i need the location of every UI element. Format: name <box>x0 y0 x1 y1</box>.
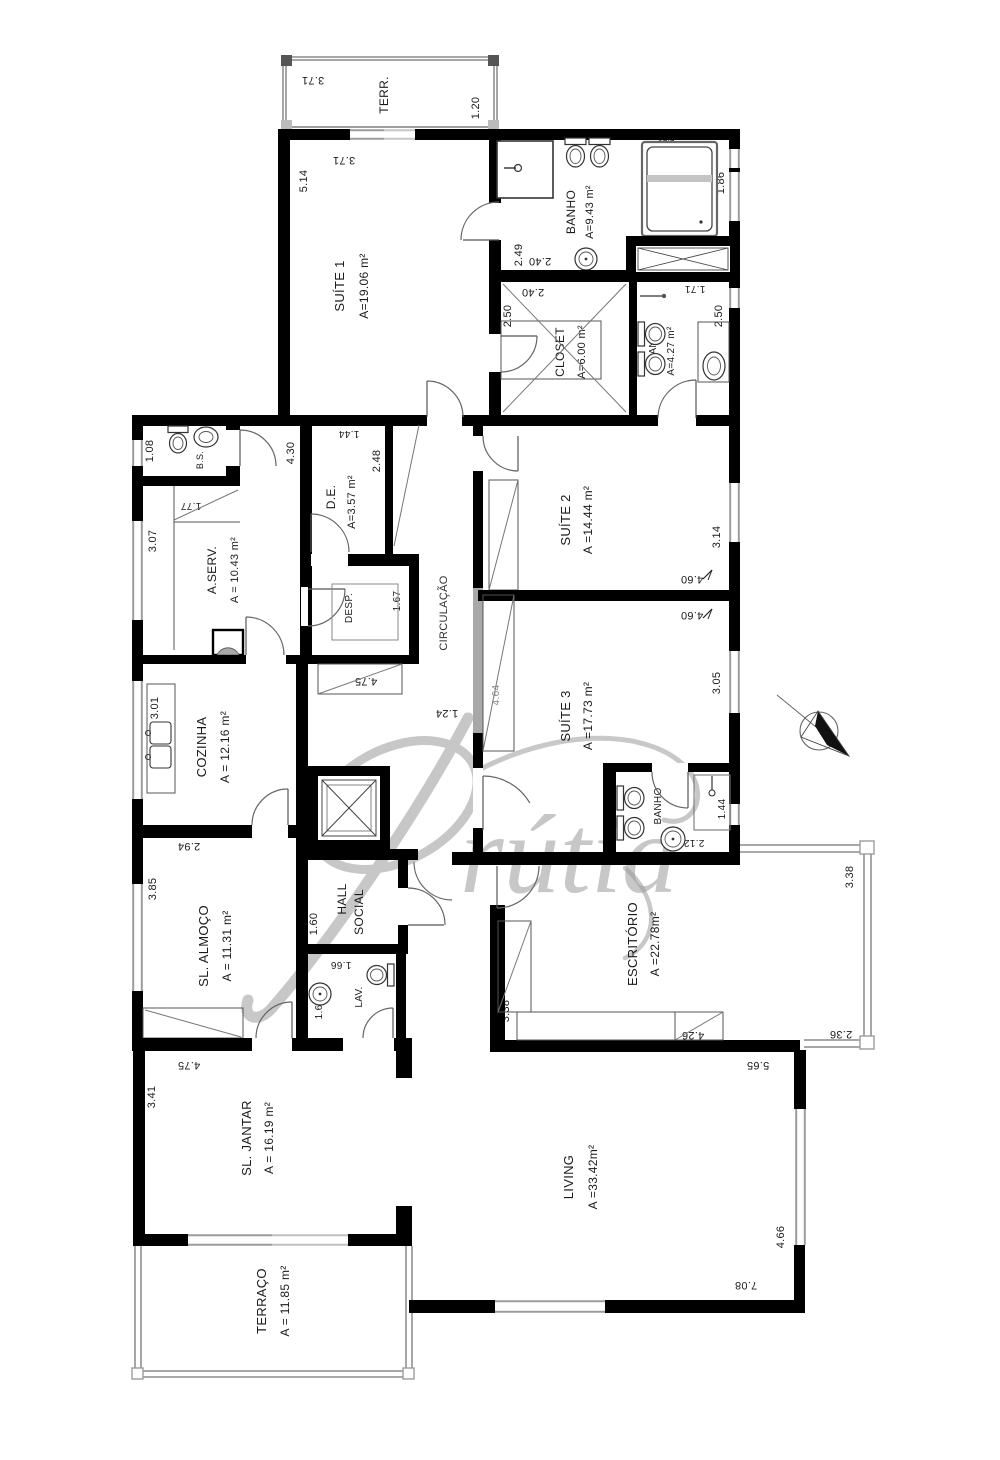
svg-text:1.44: 1.44 <box>339 428 360 439</box>
svg-text:A = 11.85 m²: A = 11.85 m² <box>278 1265 292 1336</box>
svg-text:SUÍTE 3: SUÍTE 3 <box>558 690 573 741</box>
svg-text:A=9.43 m²: A=9.43 m² <box>584 185 596 239</box>
svg-text:4.64: 4.64 <box>491 685 502 706</box>
svg-text:1.20: 1.20 <box>470 97 482 120</box>
svg-text:1.60: 1.60 <box>308 913 320 936</box>
svg-text:B.S.: B.S. <box>195 451 205 469</box>
svg-text:2.36: 2.36 <box>830 1028 853 1040</box>
svg-text:2.40: 2.40 <box>522 286 545 298</box>
svg-text:4.66: 4.66 <box>775 1226 787 1249</box>
svg-text:A.SERV.: A.SERV. <box>205 546 219 594</box>
svg-text:BANHO: BANHO <box>564 190 578 234</box>
svg-text:A = 11.31 m²: A = 11.31 m² <box>220 910 234 981</box>
svg-text:3.41: 3.41 <box>146 1086 158 1109</box>
svg-text:CLOSET: CLOSET <box>553 327 567 377</box>
svg-text:4.26: 4.26 <box>682 1029 705 1041</box>
svg-text:2.50: 2.50 <box>713 305 725 328</box>
svg-text:HALL: HALL <box>335 883 349 914</box>
svg-text:3.71: 3.71 <box>302 74 325 86</box>
svg-text:A =17.73 m²: A =17.73 m² <box>581 682 595 750</box>
svg-text:1.77: 1.77 <box>181 500 202 511</box>
svg-text:2.12: 2.12 <box>684 837 705 848</box>
svg-text:SUÍTE 2: SUÍTE 2 <box>558 494 573 545</box>
svg-text:SUÍTE 1: SUÍTE 1 <box>332 260 347 311</box>
svg-text:TERR.: TERR. <box>377 76 391 114</box>
svg-text:SL. JANTAR: SL. JANTAR <box>239 1100 254 1176</box>
svg-text:LAV.: LAV. <box>354 986 365 1007</box>
svg-text:A=19.06 m²: A=19.06 m² <box>357 253 371 318</box>
svg-text:2.49: 2.49 <box>513 244 525 267</box>
svg-text:1.08: 1.08 <box>144 440 156 463</box>
svg-text:SOCIAL: SOCIAL <box>352 889 366 935</box>
svg-text:ESCRITÓRIO: ESCRITÓRIO <box>625 902 640 986</box>
svg-text:3.01: 3.01 <box>149 697 161 720</box>
svg-text:DESP.: DESP. <box>344 593 355 623</box>
svg-text:1.24: 1.24 <box>436 707 459 719</box>
svg-text:3.14: 3.14 <box>711 526 723 549</box>
svg-text:A =33.42m²: A =33.42m² <box>586 1145 600 1210</box>
svg-text:SL. ALMOÇO: SL. ALMOÇO <box>196 905 211 987</box>
svg-text:LIVING: LIVING <box>561 1155 576 1199</box>
svg-text:A=3.57 m²: A=3.57 m² <box>346 475 358 529</box>
svg-text:A =14.44 m²: A =14.44 m² <box>581 486 595 554</box>
svg-text:A = 12.16 m²: A = 12.16 m² <box>218 711 232 783</box>
svg-text:4.60: 4.60 <box>681 573 704 585</box>
svg-text:4.60: 4.60 <box>681 609 704 621</box>
svg-text:3.85: 3.85 <box>147 878 159 901</box>
svg-text:A=4.27 m²: A=4.27 m² <box>666 326 677 375</box>
svg-text:2.48: 2.48 <box>371 450 383 473</box>
svg-text:3.71: 3.71 <box>333 154 356 166</box>
svg-text:1.66: 1.66 <box>331 959 352 970</box>
svg-text:CIRCULAÇÃO: CIRCULAÇÃO <box>437 575 450 650</box>
svg-text:1.44: 1.44 <box>717 799 728 820</box>
svg-text:1.71: 1.71 <box>685 283 706 294</box>
svg-text:2.50: 2.50 <box>502 305 514 328</box>
svg-text:D.E.: D.E. <box>324 485 338 510</box>
svg-text:7.08: 7.08 <box>735 1279 758 1291</box>
svg-text:4.75: 4.75 <box>178 1059 201 1071</box>
svg-text:2.94: 2.94 <box>178 840 201 852</box>
svg-text:3.05: 3.05 <box>711 672 723 695</box>
svg-text:5.65: 5.65 <box>747 1059 770 1071</box>
svg-text:A = 16.19 m²: A = 16.19 m² <box>262 1102 276 1174</box>
svg-text:A = 10.43 m²: A = 10.43 m² <box>229 537 241 603</box>
svg-text:4.30: 4.30 <box>285 442 297 465</box>
svg-text:5.14: 5.14 <box>298 170 310 193</box>
svg-text:3.07: 3.07 <box>147 530 159 553</box>
svg-text:3.38: 3.38 <box>844 866 856 889</box>
svg-text:A =22.78m²: A =22.78m² <box>648 912 662 977</box>
svg-text:TERRAÇO: TERRAÇO <box>254 1268 269 1334</box>
svg-text:COZINHA: COZINHA <box>194 717 209 778</box>
svg-text:2.40: 2.40 <box>529 255 552 267</box>
